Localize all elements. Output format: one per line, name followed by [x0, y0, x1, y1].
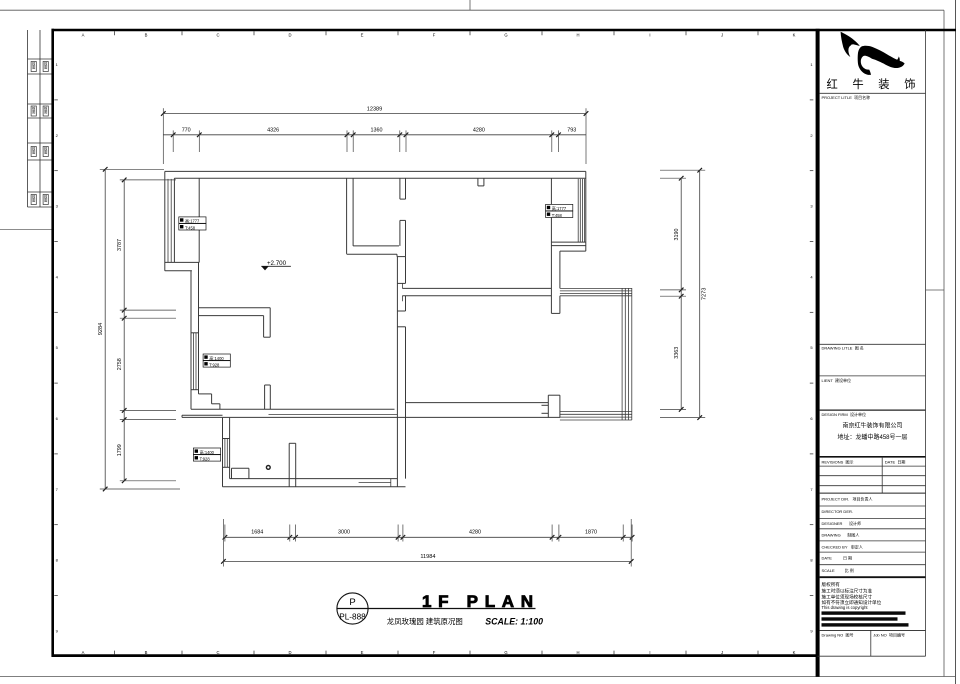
- svg-text:J: J: [721, 33, 723, 38]
- svg-text:SCALE 比 例: SCALE 比 例: [822, 567, 854, 573]
- svg-text:LIENT 建设单位: LIENT 建设单位: [822, 377, 852, 383]
- svg-text:REVISIONS 图示: REVISIONS 图示: [822, 459, 854, 465]
- svg-text:I: I: [649, 650, 650, 655]
- svg-text:1870: 1870: [585, 530, 597, 536]
- svg-text:4280: 4280: [469, 530, 481, 536]
- svg-text:PROJECT LITLE 项目名称: PROJECT LITLE 项目名称: [822, 94, 871, 100]
- svg-text:T:458: T:458: [552, 213, 563, 218]
- svg-text:This drawing is copyright: This drawing is copyright: [822, 605, 869, 610]
- svg-text:高:1777: 高:1777: [185, 218, 200, 224]
- svg-text:PROJECT DIR. 项目负责人: PROJECT DIR. 项目负责人: [822, 495, 873, 501]
- svg-text:B: B: [145, 33, 148, 38]
- svg-text:J: J: [721, 650, 723, 655]
- svg-text:4: 4: [810, 274, 813, 279]
- svg-text:5: 5: [56, 345, 59, 350]
- svg-text:H: H: [576, 33, 579, 38]
- svg-text:Drawing NO 图号: Drawing NO 图号: [822, 632, 854, 638]
- svg-text:T:928: T:928: [209, 363, 220, 368]
- svg-text:地址：龙蟠中路458号一层: 地址：龙蟠中路458号一层: [837, 433, 907, 441]
- svg-text:7: 7: [810, 487, 813, 492]
- svg-text:高:1400: 高:1400: [209, 355, 224, 361]
- svg-text:6: 6: [56, 416, 59, 421]
- svg-text:G: G: [504, 33, 507, 38]
- svg-text:DESIGNER 设计师: DESIGNER 设计师: [822, 520, 862, 526]
- svg-text:A: A: [82, 650, 85, 655]
- svg-text:H: H: [576, 650, 579, 655]
- svg-text:9284: 9284: [98, 323, 104, 335]
- svg-text:CHECKED BY 审定人: CHECKED BY 审定人: [822, 543, 863, 549]
- svg-text:D: D: [288, 33, 291, 38]
- svg-text:D: D: [288, 650, 291, 655]
- svg-text:770: 770: [182, 128, 191, 134]
- svg-text:DRAWING LITLE 图 名: DRAWING LITLE 图 名: [822, 345, 864, 351]
- svg-text:3363: 3363: [674, 347, 680, 359]
- svg-text:3190: 3190: [674, 229, 680, 241]
- svg-text:PL-888: PL-888: [339, 613, 366, 622]
- svg-text:9: 9: [810, 628, 813, 633]
- svg-text:8: 8: [56, 558, 59, 563]
- svg-text:7: 7: [56, 487, 59, 492]
- svg-text:A: A: [82, 33, 85, 38]
- svg-text:9: 9: [56, 628, 59, 633]
- svg-text:红牛装饰: 红牛装饰: [827, 77, 931, 91]
- svg-text:E: E: [361, 650, 364, 655]
- svg-text:2: 2: [56, 133, 59, 138]
- svg-text:7273: 7273: [702, 288, 708, 300]
- svg-text:+2.700: +2.700: [267, 260, 287, 267]
- svg-text:DATE 日期: DATE 日期: [885, 459, 906, 465]
- svg-text:南京红牛装饰有限公司: 南京红牛装饰有限公司: [842, 422, 902, 430]
- svg-text:C: C: [216, 650, 219, 655]
- svg-text:8: 8: [810, 558, 813, 563]
- svg-text:SCALE: 1:100: SCALE: 1:100: [485, 617, 543, 627]
- svg-text:4326: 4326: [267, 128, 279, 134]
- svg-text:1: 1: [56, 62, 59, 67]
- svg-text:1799: 1799: [117, 444, 123, 456]
- svg-text:版权所有: 版权所有: [822, 581, 841, 588]
- svg-text:3787: 3787: [117, 239, 123, 251]
- svg-text:3: 3: [810, 204, 813, 209]
- svg-text:DATE 日 期: DATE 日 期: [822, 555, 853, 561]
- svg-text:793: 793: [567, 128, 576, 134]
- svg-text:Job NO 项目编号: Job NO 项目编号: [873, 632, 905, 638]
- svg-text:G: G: [504, 650, 507, 655]
- svg-text:C: C: [216, 33, 219, 38]
- svg-text:2758: 2758: [117, 358, 123, 370]
- svg-text:DESIGN FIRM 设计单位: DESIGN FIRM 设计单位: [822, 411, 866, 417]
- svg-text:1684: 1684: [251, 530, 263, 536]
- svg-text:K: K: [793, 650, 796, 655]
- svg-text:F: F: [433, 33, 436, 38]
- svg-text:1360: 1360: [371, 128, 383, 134]
- svg-text:5: 5: [810, 345, 813, 350]
- svg-text:1F PLAN: 1F PLAN: [422, 592, 540, 611]
- svg-text:3: 3: [56, 204, 59, 209]
- svg-text:4: 4: [56, 274, 59, 279]
- svg-text:DIRECTOR DER.: DIRECTOR DER.: [822, 509, 853, 514]
- svg-text:F: F: [433, 650, 436, 655]
- svg-text:B: B: [145, 650, 148, 655]
- svg-text:2: 2: [810, 133, 813, 138]
- svg-text:龙凤玫瑰园 建筑原况图: 龙凤玫瑰园 建筑原况图: [387, 617, 463, 626]
- svg-text:K: K: [793, 33, 796, 38]
- svg-text:T:458: T:458: [185, 225, 196, 230]
- svg-text:T:928: T:928: [200, 457, 211, 462]
- svg-text:I: I: [649, 33, 650, 38]
- svg-text:高:1400: 高:1400: [200, 449, 215, 455]
- svg-text:1: 1: [810, 62, 813, 67]
- svg-text:P: P: [349, 597, 355, 608]
- svg-text:6: 6: [810, 416, 813, 421]
- svg-text:E: E: [361, 33, 364, 38]
- svg-text:4280: 4280: [473, 128, 485, 134]
- svg-text:DRAWING 制图人: DRAWING 制图人: [822, 531, 860, 537]
- svg-text:3000: 3000: [338, 530, 350, 536]
- svg-text:12389: 12389: [367, 107, 383, 113]
- svg-text:高:1777: 高:1777: [552, 205, 567, 211]
- svg-text:11984: 11984: [420, 554, 435, 560]
